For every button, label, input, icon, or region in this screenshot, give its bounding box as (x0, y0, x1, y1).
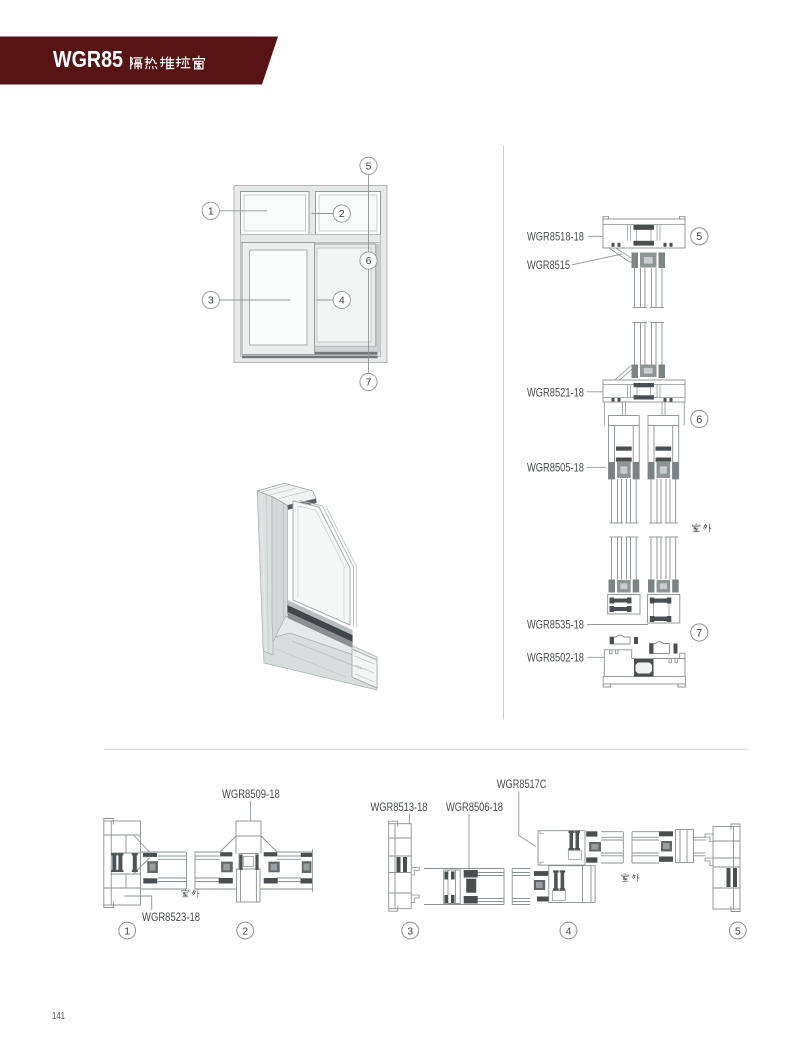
svg-text:5: 5 (696, 231, 702, 243)
svg-text:WGR8502-18: WGR8502-18 (527, 651, 584, 665)
svg-text:4: 4 (566, 925, 572, 937)
svg-text:WGR85: WGR85 (53, 46, 123, 72)
svg-text:1: 1 (124, 925, 130, 937)
svg-text:3: 3 (208, 295, 214, 307)
svg-text:3: 3 (407, 925, 413, 937)
svg-text:141: 141 (52, 1011, 65, 1022)
svg-text:WGR8506-18: WGR8506-18 (446, 800, 503, 814)
svg-text:7: 7 (366, 377, 372, 389)
svg-text:5: 5 (735, 925, 741, 937)
svg-text:WGR8517C: WGR8517C (497, 777, 547, 791)
svg-text:4: 4 (339, 295, 345, 307)
svg-text:WGR8513-18: WGR8513-18 (371, 800, 428, 814)
svg-text:WGR8523-18: WGR8523-18 (142, 910, 200, 924)
svg-text:WGR8505-18: WGR8505-18 (527, 461, 584, 475)
svg-text:WGR8535-18: WGR8535-18 (527, 618, 584, 632)
svg-text:WGR8521-18: WGR8521-18 (527, 386, 584, 400)
svg-text:7: 7 (696, 627, 702, 639)
svg-text:6: 6 (366, 255, 372, 267)
svg-text:WGR8515: WGR8515 (527, 258, 570, 272)
svg-text:2: 2 (339, 208, 345, 220)
svg-text:2: 2 (242, 925, 248, 937)
svg-text:1: 1 (208, 206, 214, 218)
svg-text:WGR8509-18: WGR8509-18 (222, 787, 280, 801)
svg-text:WGR8518-18: WGR8518-18 (527, 229, 584, 243)
svg-text:5: 5 (366, 161, 372, 173)
svg-text:6: 6 (696, 414, 702, 426)
